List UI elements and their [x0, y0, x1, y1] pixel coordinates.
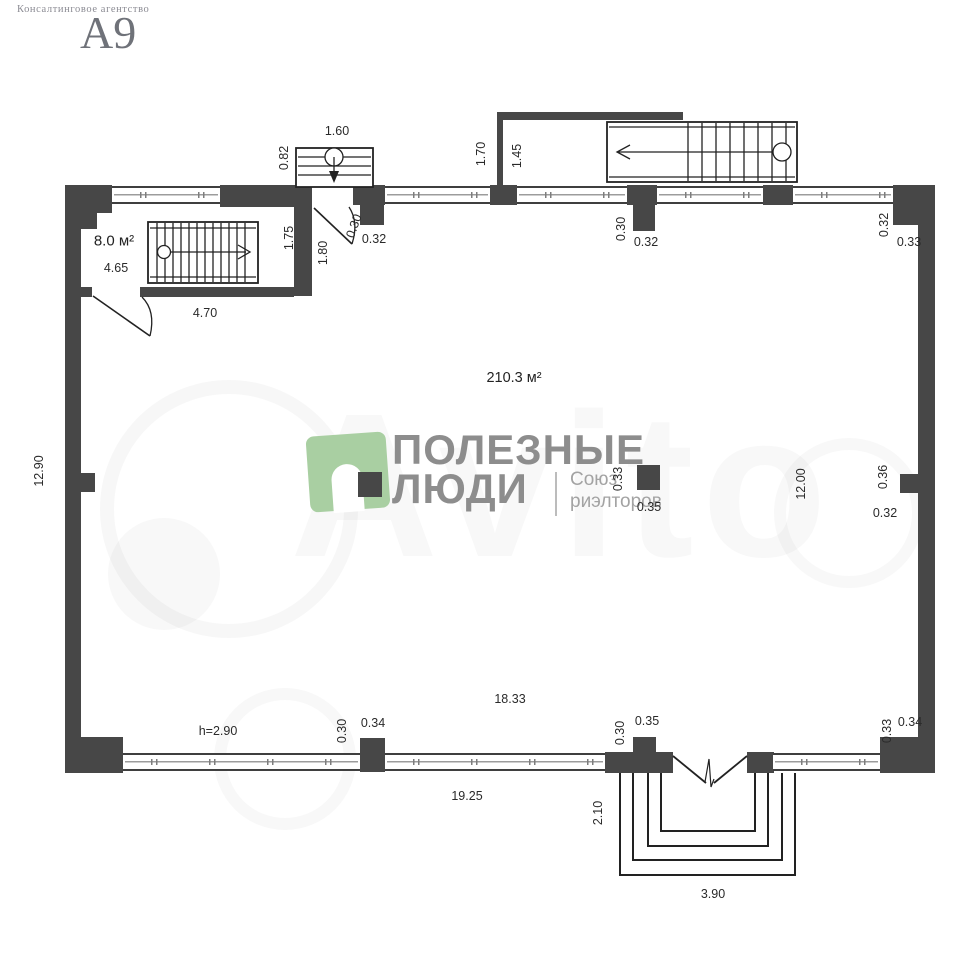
- dimension-label: 12.90: [32, 455, 46, 486]
- dimension-label: 0.30: [614, 217, 628, 241]
- dimension-label: 0.32: [634, 235, 658, 249]
- dimension-label: 18.33: [494, 692, 525, 706]
- dimension-label: 1.70: [474, 142, 488, 166]
- dimension-label: 1.45: [510, 144, 524, 168]
- dimension-label: 0.82: [277, 146, 291, 170]
- dimension-label: 0.34: [898, 715, 922, 729]
- logo-divider: [555, 472, 557, 516]
- dimension-label: 0.33: [897, 235, 921, 249]
- dimension-label: 0.32: [873, 506, 897, 520]
- logo-title-line1: ПОЛЕЗНЫЕ: [392, 430, 645, 469]
- dimension-label: 0.35: [637, 500, 661, 514]
- dimension-label: 4.65: [104, 261, 128, 275]
- dimension-label: h=2.90: [199, 724, 238, 738]
- dimension-label: 1.60: [325, 124, 349, 138]
- dimension-label: 4.70: [193, 306, 217, 320]
- dimension-label: 0.32: [362, 232, 386, 246]
- dimension-label: 2.10: [591, 801, 605, 825]
- dimension-label: 12.00: [794, 468, 808, 499]
- column-left: [358, 472, 382, 497]
- dimension-label: 0.30: [335, 719, 349, 743]
- dimension-label: 0.33: [880, 719, 894, 743]
- dimension-label: 0.34: [361, 716, 385, 730]
- column-right: [637, 465, 660, 490]
- floor-plan-page: Консалтинговое агентство А9 Avito: [0, 0, 960, 960]
- dimension-label: 1.75: [282, 226, 296, 250]
- total-area-label: 210.3 м²: [486, 370, 541, 386]
- dimension-label: 1.80: [316, 241, 330, 265]
- dimension-label: 0.33: [611, 467, 625, 491]
- dimension-label: 3.90: [701, 887, 725, 901]
- dimension-label: 0.35: [635, 714, 659, 728]
- dimension-label: 0.36: [876, 465, 890, 489]
- dimension-label: 0.30: [613, 721, 627, 745]
- room-area-label: 8.0 м²: [94, 233, 134, 250]
- dimension-label: 0.32: [877, 213, 891, 237]
- dimension-label: 19.25: [451, 789, 482, 803]
